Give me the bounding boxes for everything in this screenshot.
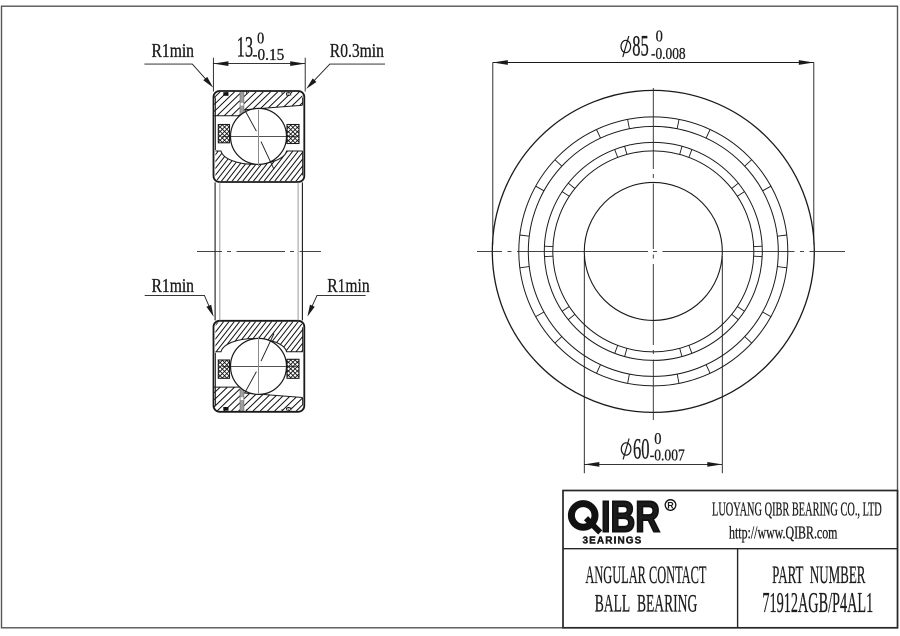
svg-text:R0.3min: R0.3min — [330, 39, 384, 61]
svg-text:-0.15: -0.15 — [252, 46, 284, 64]
svg-text:-0.007: -0.007 — [650, 446, 685, 465]
svg-text:0: 0 — [257, 29, 264, 47]
svg-text:R1min: R1min — [152, 274, 194, 296]
svg-text:R1min: R1min — [152, 39, 194, 61]
svg-text:85: 85 — [632, 29, 648, 62]
svg-text:13: 13 — [237, 31, 253, 64]
svg-text:BALL BEARING: BALL BEARING — [595, 590, 698, 617]
svg-text:R1min: R1min — [327, 274, 369, 296]
svg-text:PART NUMBER: PART NUMBER — [772, 561, 866, 589]
svg-text:http://www.QIBR.com: http://www.QIBR.com — [729, 525, 838, 544]
svg-text:-0.008: -0.008 — [651, 44, 686, 63]
svg-text:71912AGB/P4AL1: 71912AGB/P4AL1 — [762, 587, 873, 619]
svg-text:3EARINGS: 3EARINGS — [583, 536, 643, 547]
svg-text:R: R — [667, 500, 674, 510]
svg-text:0: 0 — [656, 27, 663, 45]
svg-text:60: 60 — [633, 432, 649, 465]
svg-text:IBR: IBR — [601, 492, 660, 541]
svg-text:LUOYANG QIBR BEARING CO., LTD: LUOYANG QIBR BEARING CO., LTD — [712, 499, 882, 520]
svg-text:ANGULAR CONTACT: ANGULAR CONTACT — [585, 561, 706, 589]
